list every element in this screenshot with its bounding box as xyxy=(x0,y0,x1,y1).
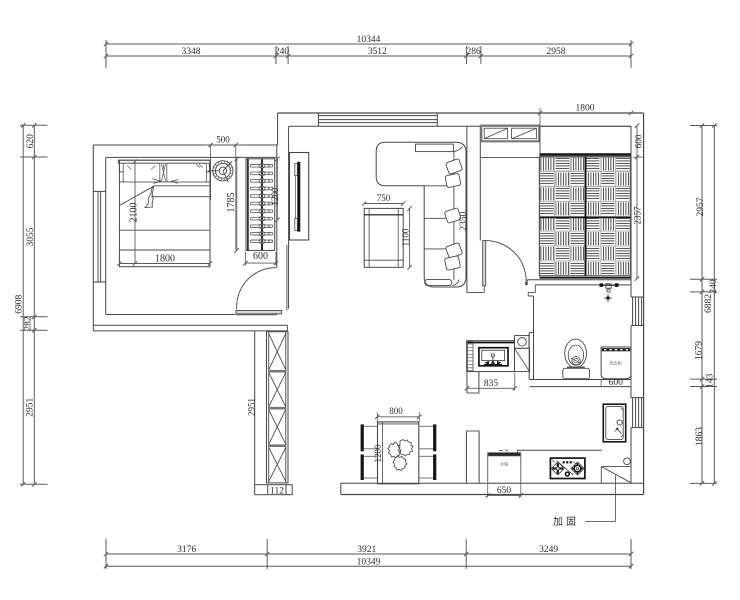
svg-text:800: 800 xyxy=(389,406,403,416)
svg-text:1800: 1800 xyxy=(155,253,175,264)
svg-text:2951: 2951 xyxy=(246,398,256,416)
svg-text:1679: 1679 xyxy=(695,341,705,360)
svg-text:2357: 2357 xyxy=(632,206,642,225)
svg-text:6908: 6908 xyxy=(15,295,25,314)
svg-text:650: 650 xyxy=(497,486,512,496)
svg-text:2100: 2100 xyxy=(128,203,139,223)
svg-text:10349: 10349 xyxy=(357,557,381,567)
svg-text:3921: 3921 xyxy=(357,545,376,555)
svg-text:112: 112 xyxy=(270,487,284,497)
svg-text:3176: 3176 xyxy=(177,545,196,555)
svg-text:1800: 1800 xyxy=(576,104,595,114)
svg-text:1200: 1200 xyxy=(270,187,280,206)
svg-text:洗衣机: 洗衣机 xyxy=(609,360,622,367)
svg-text:6882: 6882 xyxy=(704,294,714,313)
svg-text:3055: 3055 xyxy=(26,227,36,246)
svg-text:2957: 2957 xyxy=(696,197,706,216)
svg-text:1200: 1200 xyxy=(373,444,383,463)
svg-text:600: 600 xyxy=(609,378,624,388)
svg-text:282: 282 xyxy=(24,316,34,331)
svg-text:冰箱: 冰箱 xyxy=(500,461,508,468)
svg-text:500: 500 xyxy=(216,134,230,144)
svg-text:286: 286 xyxy=(466,47,481,57)
svg-text:2951: 2951 xyxy=(26,398,36,417)
svg-text:1100: 1100 xyxy=(400,228,410,246)
svg-text:2958: 2958 xyxy=(546,47,565,57)
svg-text:240: 240 xyxy=(275,47,290,57)
svg-text:1863: 1863 xyxy=(695,427,705,446)
svg-text:3249: 3249 xyxy=(539,545,558,555)
svg-text:加固: 加固 xyxy=(553,516,579,528)
svg-text:620: 620 xyxy=(26,134,36,149)
svg-text:600: 600 xyxy=(253,251,268,262)
svg-text:3348: 3348 xyxy=(182,47,201,57)
svg-text:750: 750 xyxy=(377,193,391,203)
svg-text:600: 600 xyxy=(633,134,643,148)
svg-text:3512: 3512 xyxy=(368,47,387,57)
svg-text:143: 143 xyxy=(706,373,716,388)
svg-text:240: 240 xyxy=(709,279,719,294)
svg-text:10344: 10344 xyxy=(357,35,381,45)
svg-text:835: 835 xyxy=(484,379,499,389)
svg-text:1785: 1785 xyxy=(226,193,237,213)
